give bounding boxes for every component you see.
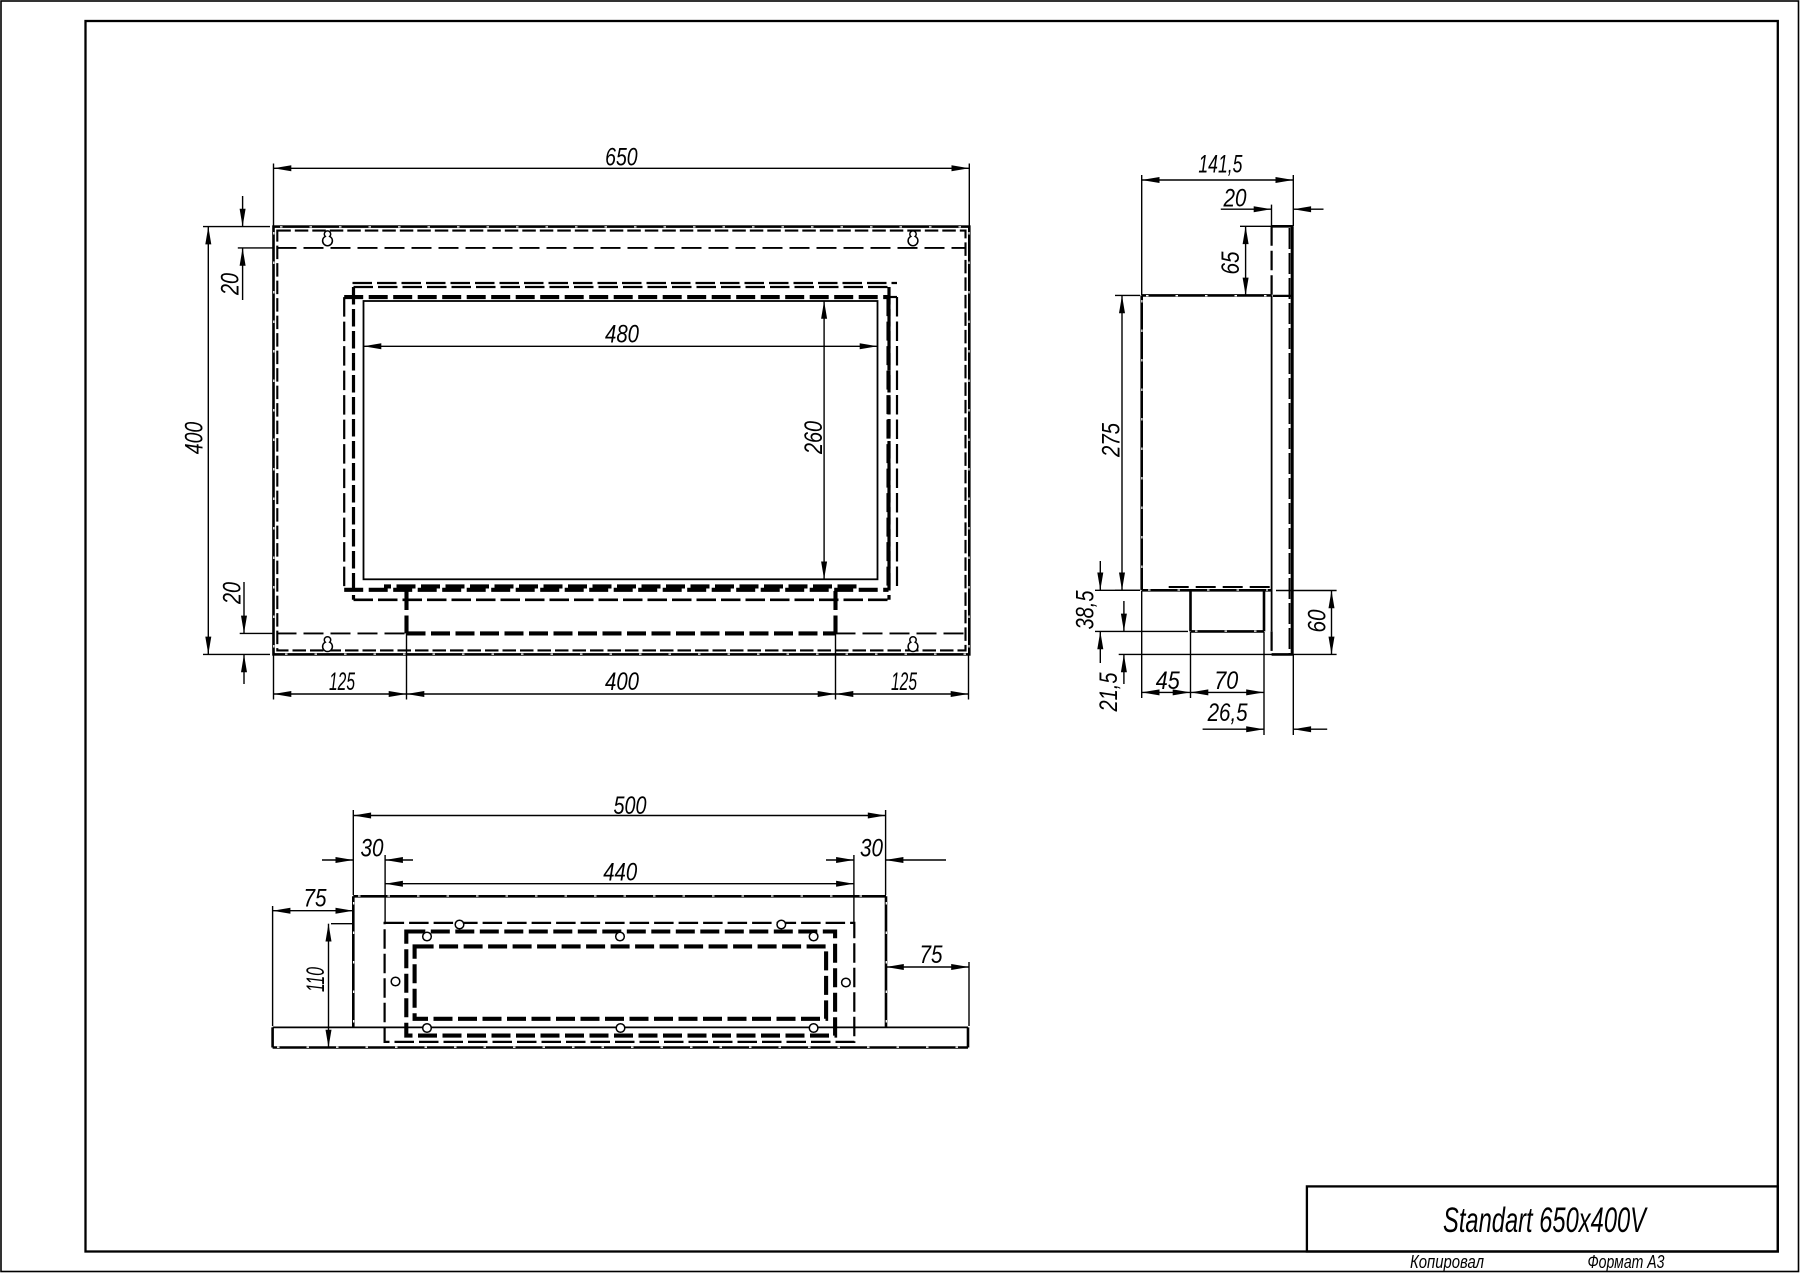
svg-text:480: 480 [605,321,639,349]
svg-text:75: 75 [304,885,328,913]
svg-text:70: 70 [1214,667,1238,695]
svg-text:400: 400 [605,668,639,696]
svg-text:20: 20 [219,582,247,605]
svg-text:125: 125 [329,668,356,696]
svg-text:26,5: 26,5 [1207,699,1249,727]
svg-text:141,5: 141,5 [1198,151,1243,179]
svg-text:500: 500 [614,792,647,820]
svg-text:Формат А3: Формат А3 [1588,1251,1666,1272]
svg-text:30: 30 [860,835,883,863]
svg-text:45: 45 [1156,667,1181,695]
svg-text:260: 260 [800,421,828,455]
svg-text:65: 65 [1217,251,1245,275]
svg-text:30: 30 [361,835,384,863]
svg-text:650: 650 [605,143,638,171]
svg-text:440: 440 [603,859,637,887]
svg-text:Standart 650x400V: Standart 650x400V [1443,1201,1648,1240]
svg-text:38,5: 38,5 [1072,590,1100,630]
svg-text:400: 400 [181,422,209,455]
svg-text:275: 275 [1098,422,1126,458]
svg-text:125: 125 [891,668,918,696]
svg-text:110: 110 [302,967,330,992]
svg-text:Копировал: Копировал [1410,1251,1484,1272]
svg-text:60: 60 [1304,610,1332,633]
svg-text:75: 75 [920,941,944,969]
svg-text:20: 20 [217,273,245,296]
svg-text:21,5: 21,5 [1095,672,1123,713]
svg-text:20: 20 [1223,185,1247,213]
